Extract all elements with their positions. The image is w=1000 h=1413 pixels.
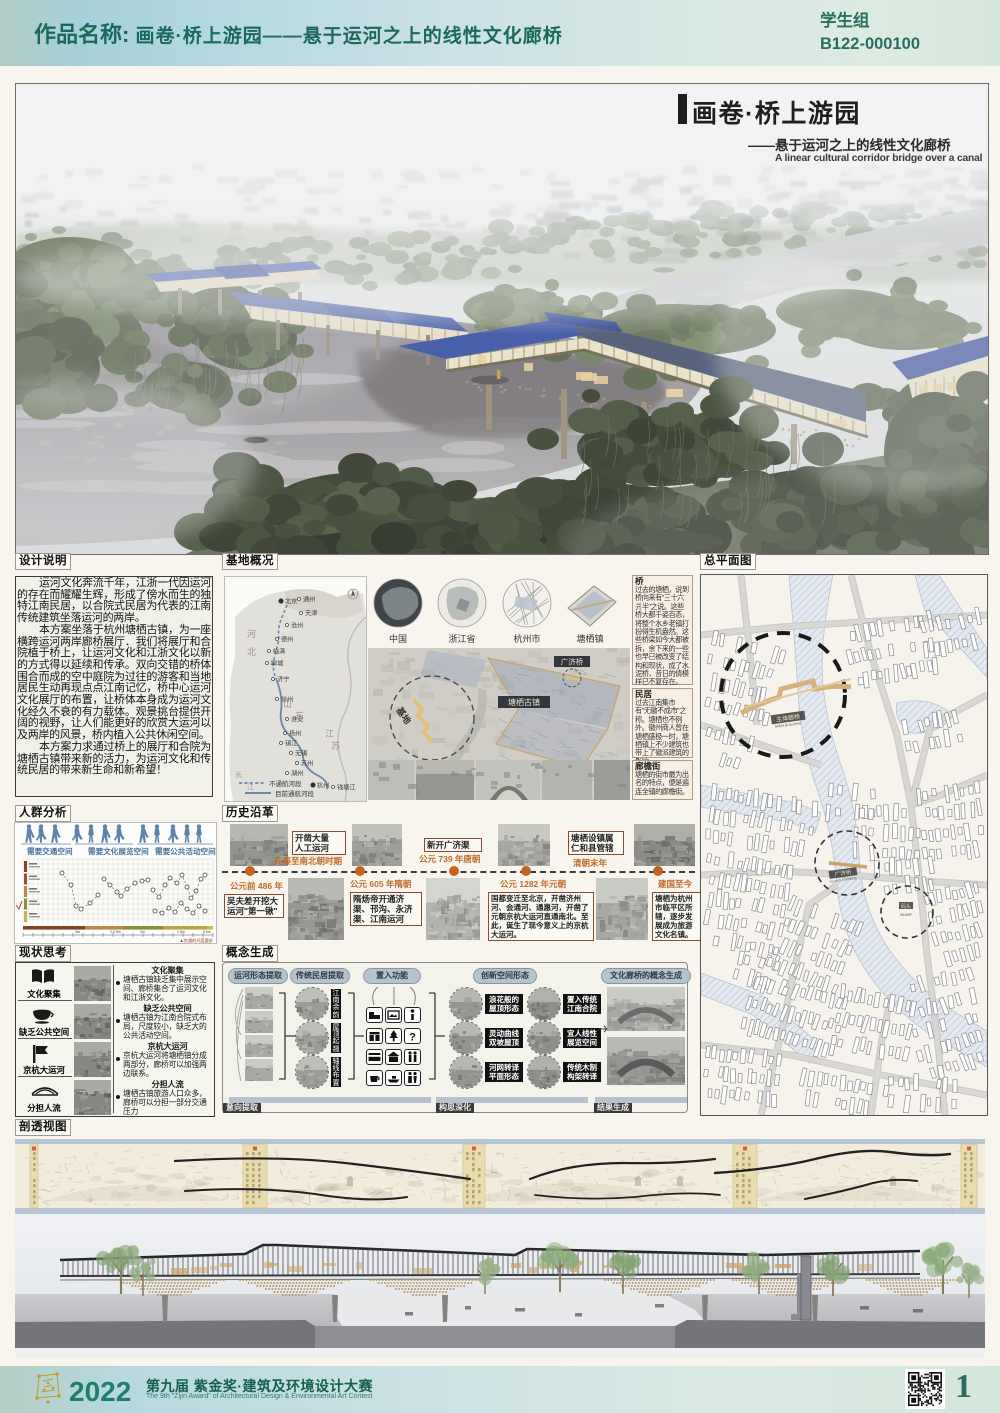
svg-text:淮安: 淮安 <box>291 716 303 724</box>
svg-text:聊城: 聊城 <box>271 660 283 668</box>
svg-text:苏: 苏 <box>331 740 340 751</box>
svg-text:临清: 临清 <box>273 648 285 656</box>
svg-text:目前通航河段: 目前通航河段 <box>275 789 315 798</box>
svg-text:1.5m: 1.5m <box>177 930 185 934</box>
svg-text:沧州: 沧州 <box>291 622 303 630</box>
svg-text:江: 江 <box>325 729 334 739</box>
svg-text:浙江省: 浙江省 <box>448 633 475 644</box>
svg-text:2-2.5m: 2-2.5m <box>110 930 121 934</box>
svg-text:塘栖镇: 塘栖镇 <box>576 633 603 644</box>
svg-text:扬州: 扬州 <box>289 730 301 738</box>
svg-text:杭州: 杭州 <box>317 782 329 790</box>
svg-text:河: 河 <box>247 628 256 639</box>
svg-text:广济桥: 广济桥 <box>561 657 584 667</box>
svg-text:WHARF: WHARF <box>900 913 912 917</box>
svg-text:不通航河段: 不通航河段 <box>269 779 302 788</box>
svg-text:2m: 2m <box>140 930 145 934</box>
svg-text:济宁: 济宁 <box>277 676 289 684</box>
svg-text:天津: 天津 <box>305 610 317 618</box>
svg-text:0.5m: 0.5m <box>203 930 211 934</box>
svg-text:长: 长 <box>235 770 242 779</box>
svg-text:塘栖古镇: 塘栖古镇 <box>508 697 540 707</box>
svg-text:钱塘江: 钱塘江 <box>337 784 356 792</box>
svg-text:湖州: 湖州 <box>291 770 303 778</box>
svg-text:3m: 3m <box>75 930 80 934</box>
svg-text:无锡: 无锡 <box>295 750 307 758</box>
svg-text:需要公共活动空间: 需要公共活动空间 <box>155 846 216 856</box>
svg-text:?: ? <box>409 1032 416 1044</box>
svg-text:苏州: 苏州 <box>301 760 313 768</box>
svg-text:德州: 德州 <box>281 636 293 644</box>
svg-text:码头: 码头 <box>901 903 911 910</box>
svg-text:江: 江 <box>247 783 254 791</box>
svg-text:北: 北 <box>247 647 256 657</box>
svg-text:需要文化展览空间: 需要文化展览空间 <box>88 846 149 856</box>
svg-text:杭州市: 杭州市 <box>513 633 540 644</box>
svg-text:通州: 通州 <box>303 596 315 604</box>
svg-text:北京: 北京 <box>285 598 297 606</box>
svg-text:徐州: 徐州 <box>281 696 293 704</box>
svg-text:▲交通的尺度要求: ▲交通的尺度要求 <box>180 937 214 943</box>
svg-text:镇江: 镇江 <box>285 740 297 748</box>
svg-text:需要交通空间: 需要交通空间 <box>27 846 73 856</box>
svg-text:中国: 中国 <box>389 633 407 644</box>
